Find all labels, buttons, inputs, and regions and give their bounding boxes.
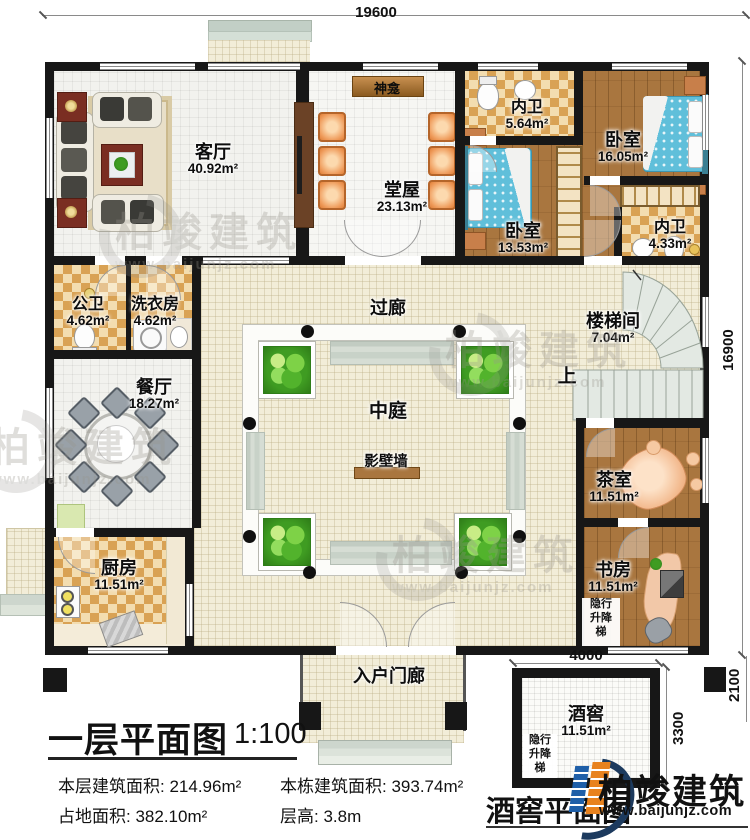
living-room-label: 客厅 40.92m²: [163, 142, 263, 177]
room-name: 餐厅: [114, 377, 194, 397]
door-opening: [618, 518, 648, 527]
shrine-label: 神龛: [352, 78, 422, 97]
tea-cushion: [646, 440, 661, 455]
room-area: 11.51m²: [573, 490, 655, 505]
door-opening: [586, 418, 614, 428]
window: [46, 388, 53, 478]
sofa-cushion: [61, 120, 87, 144]
nightstand: [684, 76, 706, 95]
plan-scale: 1:100: [234, 718, 307, 751]
room-area: 40.92m²: [163, 162, 263, 177]
column-dot: [513, 417, 526, 430]
elevator-line: 升降: [523, 748, 557, 762]
window: [186, 584, 193, 636]
planter-tree: [263, 346, 311, 394]
door-opening: [56, 528, 94, 537]
dining-label: 餐厅 18.27m²: [114, 377, 194, 412]
walkway-left: [246, 432, 265, 510]
toilet-tank: [479, 76, 497, 85]
sink-icon: [514, 80, 536, 100]
brand-url: www.baijunjz.com: [599, 803, 732, 819]
wall: [455, 71, 465, 262]
laundry-label: 洗衣房 4.62m²: [120, 296, 190, 329]
door-opening: [590, 176, 620, 185]
hall-chair: [318, 146, 346, 176]
room-area: 4.62m²: [120, 314, 190, 329]
stat-value: 393.74m²: [391, 777, 463, 796]
window: [88, 647, 168, 654]
stat-value: 214.96m²: [169, 777, 241, 796]
window: [702, 297, 709, 347]
room-name: 洗衣房: [120, 296, 190, 314]
room-area: 13.53m²: [482, 241, 564, 256]
elevator-line: 隐行: [523, 734, 557, 748]
sofa-cushion: [130, 200, 154, 224]
washer-drum: [140, 327, 162, 349]
cellar-height-label: 3300: [670, 702, 687, 754]
stair-up-label: 上: [550, 366, 584, 387]
pillar: [43, 668, 67, 692]
planter-tree: [263, 518, 311, 566]
bed-sheet: [504, 148, 530, 226]
stat-value: 3.8m: [323, 807, 361, 826]
room-name: 楼梯间: [568, 311, 658, 331]
pillow-icon: [688, 101, 703, 133]
pillow-icon: [688, 136, 703, 168]
computer-icon: [660, 570, 684, 598]
column-dot: [513, 530, 526, 543]
room-area: 11.51m²: [78, 578, 160, 593]
room-name: 酒窖: [540, 704, 632, 724]
room-name: 内卫: [494, 99, 560, 117]
stat-label: 本层建筑面积:: [58, 777, 165, 796]
door-opening: [345, 256, 421, 265]
public-bath-label: 公卫 4.62m²: [56, 296, 120, 329]
stat-label: 本栋建筑面积:: [280, 777, 387, 796]
sink-icon: [170, 326, 188, 348]
atrium-label: 中庭: [348, 401, 428, 422]
sofa-cushion: [101, 200, 125, 224]
plan-title: 一层平面图: [48, 712, 228, 763]
door-opening: [146, 256, 182, 265]
room-area: 11.51m²: [572, 580, 654, 595]
pillow-icon: [468, 189, 483, 221]
room-name: 茶室: [573, 470, 655, 490]
column-dot: [243, 417, 256, 430]
elevator-line: 梯: [523, 762, 557, 776]
room-area: 5.64m²: [494, 117, 560, 132]
room-area: 16.05m²: [583, 150, 663, 165]
window: [203, 257, 289, 264]
hall-label: 堂屋 23.13m²: [352, 180, 452, 215]
wall: [45, 350, 201, 359]
room-name: 卧室: [482, 221, 564, 241]
column-dot: [455, 566, 468, 579]
room-area: 18.27m²: [114, 397, 194, 412]
walkway-top: [330, 341, 454, 365]
window: [702, 95, 709, 150]
balcony-floor: [208, 40, 310, 62]
hall-chair: [428, 112, 456, 142]
planter-tree: [459, 518, 507, 566]
wall: [574, 71, 583, 145]
study-label: 书房 11.51m²: [572, 560, 654, 595]
window: [100, 63, 195, 70]
column-dot: [453, 325, 466, 338]
title-underline: [48, 757, 297, 760]
sofa-cushion: [61, 148, 87, 172]
sofa-cushion: [61, 176, 87, 200]
room-area: 7.04m²: [568, 331, 658, 346]
tea-cushion: [686, 452, 700, 466]
column-dot: [303, 566, 316, 579]
room-name: 厨房: [78, 558, 160, 578]
door-opening: [584, 256, 622, 265]
dining-table-inner: [97, 425, 135, 463]
elevator-line: 梯: [582, 626, 620, 640]
room-name: 客厅: [163, 142, 263, 162]
dimension-right-label: 16900: [720, 320, 737, 380]
dimension-corner-label: 2100: [726, 660, 743, 710]
window: [608, 647, 688, 654]
table-lamp-icon: [65, 206, 77, 218]
sofa-cushion: [100, 97, 124, 121]
stat-label: 层高:: [280, 807, 319, 826]
stairwell-label: 楼梯间 7.04m²: [568, 311, 658, 346]
room-name: 堂屋: [352, 180, 452, 200]
sofa-cushion: [128, 97, 152, 121]
bedroom-left-label: 卧室 13.53m²: [482, 221, 564, 256]
floor-plan-canvas: 19600 16900 2100: [0, 0, 750, 840]
window: [46, 118, 53, 198]
window: [363, 63, 438, 70]
column-dot: [301, 325, 314, 338]
room-name: 内卫: [632, 219, 708, 237]
bath-mid-label: 内卫 4.33m²: [632, 219, 708, 252]
bath-top-label: 内卫 5.64m²: [494, 99, 560, 132]
porch-steps: [318, 740, 452, 765]
planter-tree: [461, 346, 509, 394]
burner-icon: [61, 603, 74, 616]
floor-height-stat: 层高: 3.8m: [280, 802, 361, 827]
screen-wall-label: 影壁墙: [350, 450, 422, 471]
bedroom-right-label: 卧室 16.05m²: [583, 130, 663, 165]
hidden-elevator-label: 隐行 升降 梯: [582, 598, 620, 646]
hall-chair: [318, 180, 346, 210]
burner-icon: [61, 590, 74, 603]
column-dot: [243, 530, 256, 543]
door-opening: [470, 136, 496, 145]
room-name: 书房: [572, 560, 654, 580]
dimension-line-corner: [746, 656, 747, 722]
elevator-line: 隐行: [582, 598, 620, 612]
kitchen-counter: [166, 532, 186, 644]
pillar: [704, 667, 726, 692]
hall-chair: [318, 112, 346, 142]
tv-icon: [297, 136, 302, 194]
window: [702, 438, 709, 503]
porch-label: 入户门廊: [329, 666, 449, 686]
tea-room-label: 茶室 11.51m²: [573, 470, 655, 505]
cellar-width-label: 4000: [558, 647, 614, 664]
window: [208, 63, 300, 70]
porch-pillar: [445, 702, 467, 730]
plant-icon: [114, 157, 128, 171]
room-name: 公卫: [56, 296, 120, 314]
room-area: 4.33m²: [632, 237, 708, 252]
building-area-stat: 本栋建筑面积: 393.74m²: [280, 772, 463, 797]
window: [612, 63, 687, 70]
wardrobe-icon: [620, 185, 700, 207]
dimension-line-right: [742, 62, 743, 656]
table-lamp-icon: [65, 100, 77, 112]
room-area: 4.62m²: [56, 314, 120, 329]
walkway-bottom: [330, 541, 452, 565]
dimension-top-label: 19600: [346, 4, 406, 21]
land-area-stat: 占地面积: 382.10m²: [58, 802, 207, 827]
wall: [455, 256, 709, 265]
room-name: 卧室: [583, 130, 663, 150]
window: [478, 63, 538, 70]
cellar-elevator-label: 隐行 升降 梯: [523, 734, 557, 778]
elevator-line: 升降: [582, 612, 620, 626]
kitchen-label: 厨房 11.51m²: [78, 558, 160, 593]
hall-chair: [428, 146, 456, 176]
walkway-right: [506, 432, 525, 510]
floor-area-stat: 本层建筑面积: 214.96m²: [58, 772, 241, 797]
corridor-label: 过廊: [348, 298, 428, 318]
stat-label: 占地面积:: [58, 807, 131, 826]
room-area: 23.13m²: [352, 200, 452, 215]
stat-value: 382.10m²: [135, 807, 207, 826]
door-opening: [336, 646, 456, 655]
door-opening: [95, 256, 125, 265]
